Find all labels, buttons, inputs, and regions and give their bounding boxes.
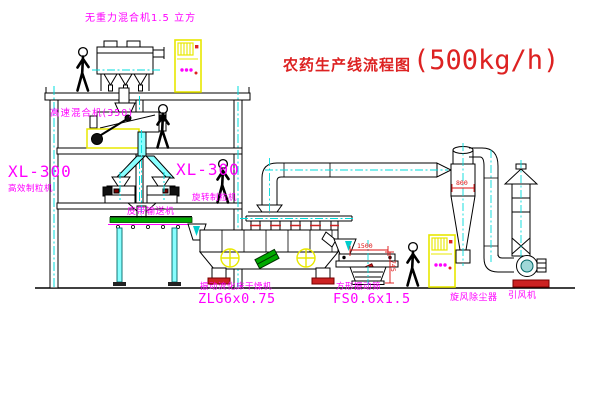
- person-1: [78, 48, 89, 91]
- floor2-slab: [57, 148, 242, 154]
- exhaust-hood-manifold: [240, 212, 355, 230]
- control-cabinet-1: [175, 40, 201, 92]
- label-high-speed-mixer: 高速混合机(350): [50, 109, 133, 119]
- label-screen-model: FS0.6x1.5: [333, 293, 411, 307]
- cyclone-fan-duct: [469, 148, 514, 272]
- label-dryer-model: ZLG6x0.75: [198, 293, 276, 307]
- y-chute: [116, 156, 174, 178]
- granulator-right: [147, 172, 179, 203]
- title-capacity: (500kg/h): [413, 45, 559, 76]
- roof-slab: [45, 93, 250, 100]
- main-exhaust-duct: [257, 158, 451, 214]
- label-granulator-left-name: 高效制粒机: [8, 185, 53, 194]
- control-cabinet-2: [429, 235, 455, 287]
- label-gravity-mixer: 无重力混合机1.5 立方: [85, 14, 196, 24]
- title-chinese: 农药生产线流程图: [283, 54, 411, 75]
- label-granulator-right-name: 旋转制粒机: [192, 194, 237, 203]
- dimension-screen-height: 745: [390, 260, 397, 272]
- diagram-title: 农药生产线流程图 (500kg/h): [283, 45, 559, 76]
- granulator-left: [103, 172, 135, 203]
- dimension-cyclone-diameter: 800: [456, 180, 468, 187]
- fluid-bed-dryer: [200, 230, 338, 284]
- person-4: [408, 243, 419, 286]
- induced-draft-fan: [513, 256, 549, 288]
- exhaust-stack: [505, 160, 537, 258]
- label-granulator-right-model: XL-300: [176, 162, 240, 178]
- process-flow-diagram: 农药生产线流程图 (500kg/h) 无重力混合机1.5 立方 高速混合机(35…: [0, 0, 600, 403]
- label-fan: 引风机: [508, 292, 537, 301]
- belt-conveyor: [108, 217, 194, 287]
- label-cyclone: 旋风除尘器: [450, 294, 498, 303]
- label-granulator-left-model: XL-300: [8, 164, 72, 180]
- dimension-screen-length: 1500: [357, 243, 373, 250]
- label-belt-conveyor: 皮带输送机: [127, 208, 175, 217]
